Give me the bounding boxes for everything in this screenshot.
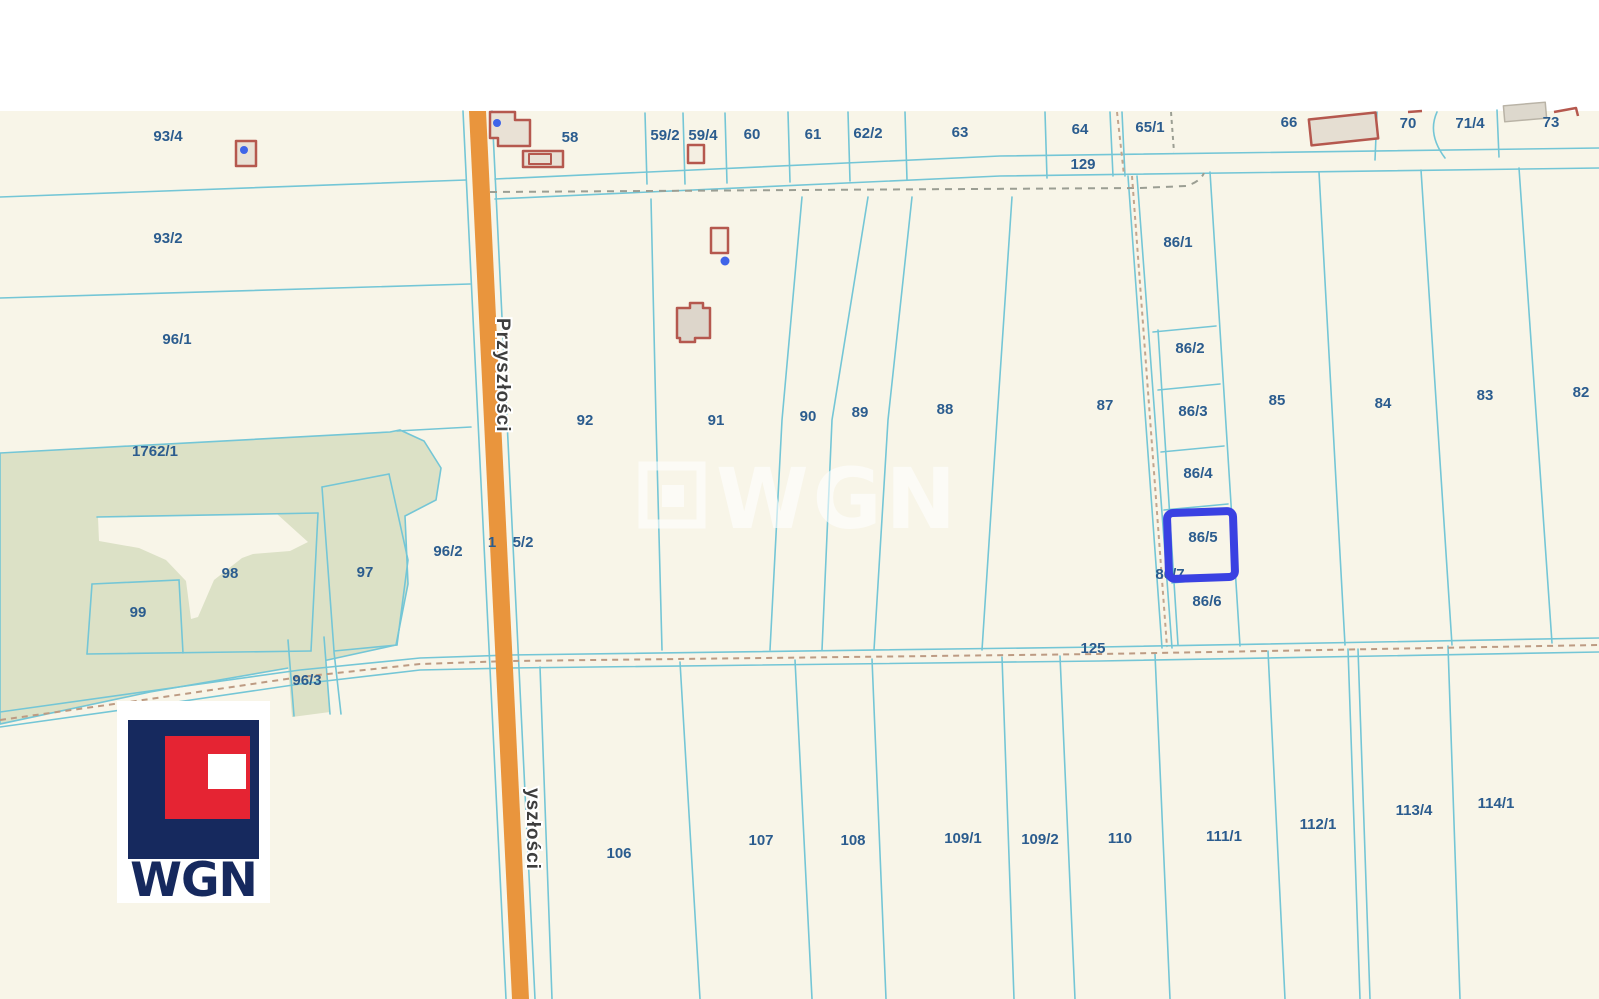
street-label-przyszlosci-partial: yszłości bbox=[522, 788, 543, 870]
parcel-label-106: 106 bbox=[606, 845, 631, 862]
parcel-label-84: 84 bbox=[1375, 395, 1392, 412]
parcel-label-62-2: 62/2 bbox=[853, 125, 882, 142]
parcel-label-108: 108 bbox=[840, 832, 865, 849]
parcel-label-64: 64 bbox=[1072, 121, 1089, 138]
parcel-label-86-6: 86/6 bbox=[1192, 593, 1221, 610]
parcel-label-66: 66 bbox=[1281, 114, 1298, 131]
parcel-label-110: 110 bbox=[1108, 830, 1132, 847]
parcel-label-107: 107 bbox=[748, 832, 773, 849]
parcel-label-111-1: 111/1 bbox=[1206, 828, 1242, 845]
parcel-label-59-4: 59/4 bbox=[688, 127, 718, 144]
parcel-label-86-3: 86/3 bbox=[1178, 403, 1207, 420]
building bbox=[1309, 113, 1378, 146]
parcel-label-113-4: 113/4 bbox=[1396, 802, 1433, 819]
parcel-label-91: 91 bbox=[708, 412, 725, 429]
building bbox=[1408, 111, 1422, 112]
parcel-label-96-2: 96/2 bbox=[433, 543, 462, 560]
parcel-label-59-2: 59/2 bbox=[650, 127, 679, 144]
parcel-label-85: 85 bbox=[1269, 392, 1286, 409]
parcel-label-86-1: 86/1 bbox=[1163, 234, 1192, 251]
wgn-logo: WGN bbox=[117, 701, 270, 903]
parcel-label-92: 92 bbox=[577, 412, 594, 429]
wgn-logo-navy-square bbox=[128, 720, 259, 859]
parcel-label-112-1: 112/1 bbox=[1300, 816, 1337, 833]
building bbox=[1503, 102, 1546, 122]
parcel-label-58: 58 bbox=[562, 129, 579, 146]
building bbox=[711, 228, 728, 253]
parcel-label-70: 70 bbox=[1400, 115, 1417, 132]
parcel-label-96-3: 96/3 bbox=[292, 672, 321, 689]
parcel-label-5-2: 5/2 bbox=[513, 534, 534, 551]
parcel-label-89: 89 bbox=[852, 404, 869, 421]
parcel-label-83: 83 bbox=[1477, 387, 1494, 404]
parcel-label-87: 87 bbox=[1097, 397, 1114, 414]
parcel-label-99: 99 bbox=[130, 604, 147, 621]
map-screenshot: WGN 93/45859/259/4606162/2636465/1667071… bbox=[0, 0, 1599, 999]
wgn-logo-red-square bbox=[165, 736, 250, 819]
parcel-label-98: 98 bbox=[222, 565, 239, 582]
blue-dot bbox=[493, 119, 501, 127]
parcel-label-60: 60 bbox=[744, 126, 761, 143]
parcel-label-65-1: 65/1 bbox=[1135, 119, 1164, 136]
parcel-label-73: 73 bbox=[1543, 114, 1560, 131]
parcel-label-129: 129 bbox=[1070, 156, 1095, 173]
parcel-label-114-1: 114/1 bbox=[1478, 795, 1515, 812]
parcel-label-1: 1 bbox=[488, 534, 496, 551]
building bbox=[236, 141, 256, 166]
parcel-label-93-4: 93/4 bbox=[153, 128, 183, 145]
parcel-label-82: 82 bbox=[1573, 384, 1590, 401]
building bbox=[677, 303, 710, 342]
parcel-label-63: 63 bbox=[952, 124, 969, 141]
blue-dot bbox=[240, 146, 248, 154]
parcel-label-90: 90 bbox=[800, 408, 817, 425]
parcel-label-93-2: 93/2 bbox=[153, 230, 182, 247]
parcel-label-96-1: 96/1 bbox=[162, 331, 191, 348]
parcel-label-109-1: 109/1 bbox=[944, 830, 982, 847]
parcel-label-86-4: 86/4 bbox=[1183, 465, 1213, 482]
street-label-przyszlosci: Przyszłości bbox=[492, 318, 513, 433]
parcel-label-97: 97 bbox=[357, 564, 374, 581]
parcel-label-61: 61 bbox=[805, 126, 822, 143]
building bbox=[688, 145, 704, 163]
wgn-logo-text: WGN bbox=[117, 853, 270, 908]
parcel-label-86-2: 86/2 bbox=[1175, 340, 1204, 357]
parcel-label-125: 125 bbox=[1080, 640, 1105, 657]
blue-dot bbox=[721, 257, 730, 266]
parcel-label-86-5: 86/5 bbox=[1188, 529, 1217, 546]
parcel-label-88: 88 bbox=[937, 401, 954, 418]
parcel-label-109-2: 109/2 bbox=[1021, 831, 1059, 848]
watermark-text: WGN bbox=[716, 450, 960, 548]
wgn-logo-white-square bbox=[208, 754, 246, 789]
parcel-label-1762-1: 1762/1 bbox=[132, 443, 178, 460]
parcel-label-71-4: 71/4 bbox=[1455, 115, 1485, 132]
